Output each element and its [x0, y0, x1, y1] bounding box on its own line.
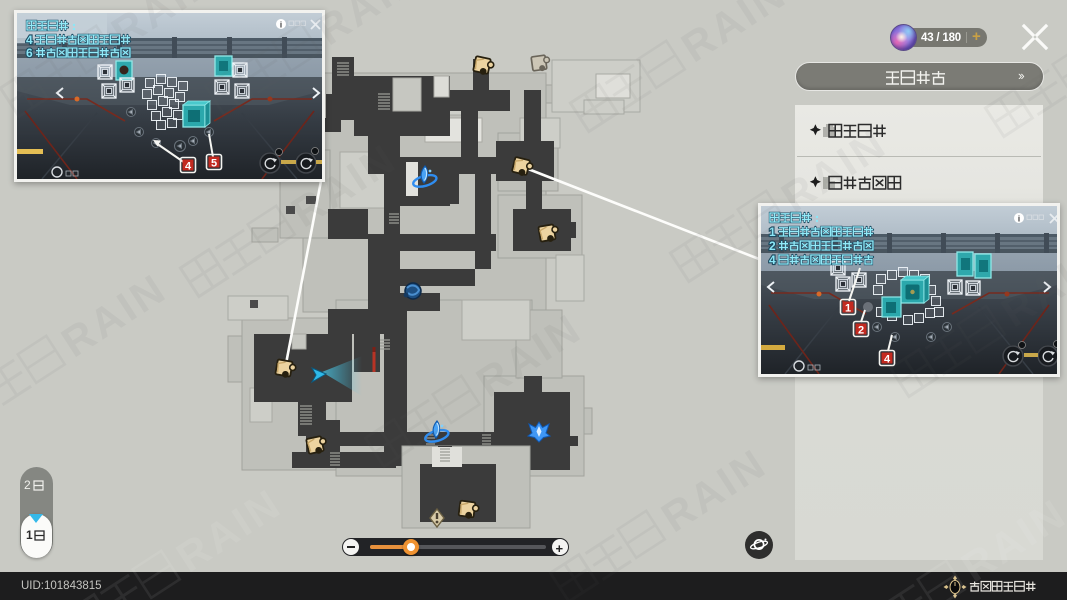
svg-text:5: 5 [211, 158, 217, 170]
svg-text:1: 1 [769, 225, 776, 239]
svg-text:i: i [1018, 215, 1020, 224]
svg-text:2: 2 [858, 325, 864, 337]
svg-text:4: 4 [884, 354, 891, 366]
svg-text:4: 4 [769, 253, 776, 267]
svg-text:4: 4 [26, 33, 33, 47]
svg-text:4: 4 [185, 161, 192, 173]
svg-text:1: 1 [845, 303, 851, 315]
svg-text:6: 6 [26, 46, 33, 60]
svg-text:i: i [280, 21, 282, 30]
svg-text:2: 2 [769, 239, 776, 253]
